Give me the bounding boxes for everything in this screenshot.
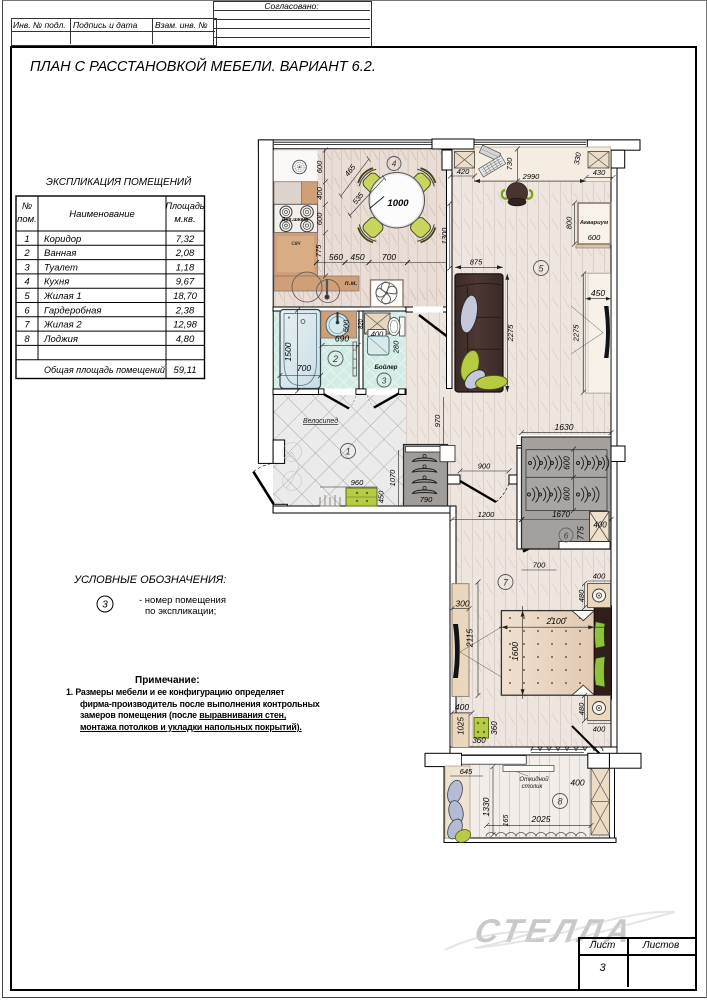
svg-text:775: 775 (314, 244, 323, 257)
svg-text:1200: 1200 (478, 510, 496, 519)
svg-text:360: 360 (472, 736, 486, 745)
svg-text:560: 560 (329, 252, 343, 262)
svg-text:1,18: 1,18 (176, 262, 195, 273)
svg-text:4: 4 (392, 159, 397, 169)
svg-text:790: 790 (420, 495, 433, 504)
svg-text:165: 165 (503, 815, 510, 827)
svg-text:400: 400 (570, 778, 584, 788)
svg-text:Наименование: Наименование (69, 209, 135, 220)
svg-text:450: 450 (377, 490, 386, 503)
svg-text:820: 820 (359, 318, 365, 329)
svg-text:1000: 1000 (387, 198, 409, 209)
svg-text:1025: 1025 (457, 717, 466, 735)
svg-text:400: 400 (593, 725, 606, 734)
svg-text:970: 970 (433, 414, 442, 427)
svg-text:500: 500 (342, 319, 351, 332)
svg-text:700: 700 (382, 252, 396, 262)
svg-text:600: 600 (315, 160, 324, 173)
svg-text:1600: 1600 (510, 642, 520, 661)
svg-text:8: 8 (24, 334, 30, 345)
svg-text:59,11: 59,11 (173, 365, 196, 376)
svg-text:Велосипед: Велосипед (303, 417, 338, 425)
svg-text:Аквариум: Аквариум (579, 220, 609, 226)
svg-text:Откидной: Откидной (519, 776, 549, 783)
svg-text:775: 775 (577, 526, 586, 540)
svg-text:360: 360 (490, 721, 499, 735)
svg-text:1500: 1500 (283, 342, 293, 361)
svg-text:450: 450 (350, 252, 364, 262)
svg-text:960: 960 (351, 478, 364, 487)
svg-text:2025: 2025 (531, 814, 551, 824)
svg-text:280: 280 (392, 340, 401, 354)
svg-text:столик: столик (522, 784, 544, 790)
svg-text:600: 600 (315, 212, 324, 225)
svg-text:2275: 2275 (506, 324, 515, 343)
svg-text:5: 5 (24, 291, 30, 302)
svg-text:420: 420 (457, 167, 470, 176)
svg-text:300: 300 (455, 599, 469, 609)
svg-text:1: 1 (24, 234, 29, 245)
svg-text:м.кв.: м.кв. (174, 214, 195, 225)
svg-text:875: 875 (470, 258, 483, 267)
svg-text:1670: 1670 (552, 510, 570, 519)
svg-text:690: 690 (335, 334, 349, 344)
svg-text:3: 3 (102, 600, 108, 611)
svg-text:400: 400 (315, 186, 324, 199)
svg-text:1070: 1070 (388, 469, 397, 487)
svg-text:1: 1 (345, 447, 350, 457)
svg-text:18,70: 18,70 (173, 291, 197, 302)
svg-text:2,38: 2,38 (175, 305, 195, 316)
svg-text:Лоджия: Лоджия (43, 334, 78, 345)
svg-text:Ванная: Ванная (44, 248, 76, 259)
svg-text:пом.: пом. (17, 214, 37, 225)
svg-text:Жилая 2: Жилая 2 (43, 320, 82, 331)
svg-text:2: 2 (23, 248, 30, 259)
svg-text:1330: 1330 (481, 797, 491, 816)
svg-text:7,32: 7,32 (176, 234, 195, 245)
svg-text:Дух.шкаф: Дух.шкаф (282, 216, 309, 223)
svg-text:480: 480 (577, 702, 586, 715)
svg-text:450: 450 (591, 288, 605, 298)
svg-text:3: 3 (24, 262, 30, 273)
svg-text:1630: 1630 (555, 422, 574, 432)
svg-text:700: 700 (533, 561, 546, 570)
svg-text:700: 700 (297, 363, 311, 373)
svg-text:400: 400 (593, 521, 607, 530)
svg-text:Кухня: Кухня (44, 277, 69, 288)
svg-text:2: 2 (332, 354, 338, 364)
svg-text:730: 730 (505, 157, 514, 170)
svg-text:Площадь: Площадь (165, 201, 204, 211)
svg-text:Общая площадь помещений: Общая площадь помещений (44, 365, 165, 375)
svg-text:12,98: 12,98 (173, 320, 197, 331)
svg-text:7: 7 (24, 320, 30, 331)
svg-text:п.м.: п.м. (345, 280, 358, 287)
svg-text:400: 400 (455, 702, 469, 712)
svg-text:600: 600 (588, 233, 601, 242)
svg-text:6: 6 (24, 305, 30, 316)
svg-text:2115: 2115 (465, 629, 475, 649)
svg-text:2,08: 2,08 (175, 248, 195, 259)
svg-text:3: 3 (382, 376, 387, 386)
svg-text:свч: свч (292, 241, 301, 247)
svg-text:4: 4 (24, 277, 29, 288)
svg-text:1300: 1300 (440, 227, 449, 245)
svg-text:645: 645 (460, 767, 473, 776)
svg-text:Туалет: Туалет (44, 262, 78, 273)
svg-text:800: 800 (565, 216, 574, 229)
svg-text:2990: 2990 (522, 172, 541, 181)
svg-text:430: 430 (593, 168, 606, 177)
svg-text:Бойлер: Бойлер (375, 364, 398, 371)
svg-text:900: 900 (478, 462, 491, 471)
svg-text:2275: 2275 (572, 324, 581, 343)
svg-text:8: 8 (557, 797, 562, 807)
svg-text:Жилая 1: Жилая 1 (43, 291, 82, 302)
svg-text:4,80: 4,80 (176, 334, 195, 345)
svg-text:400: 400 (593, 572, 606, 581)
svg-text:9,67: 9,67 (176, 277, 195, 288)
svg-text:№: № (22, 201, 32, 212)
svg-text:Коридор: Коридор (44, 234, 81, 245)
svg-text:6: 6 (564, 531, 569, 541)
svg-text:600: 600 (563, 456, 572, 470)
svg-text:600: 600 (563, 487, 572, 501)
svg-text:2100: 2100 (546, 616, 566, 626)
svg-text:Гардеробная: Гардеробная (44, 305, 101, 316)
svg-text:480: 480 (577, 589, 586, 602)
